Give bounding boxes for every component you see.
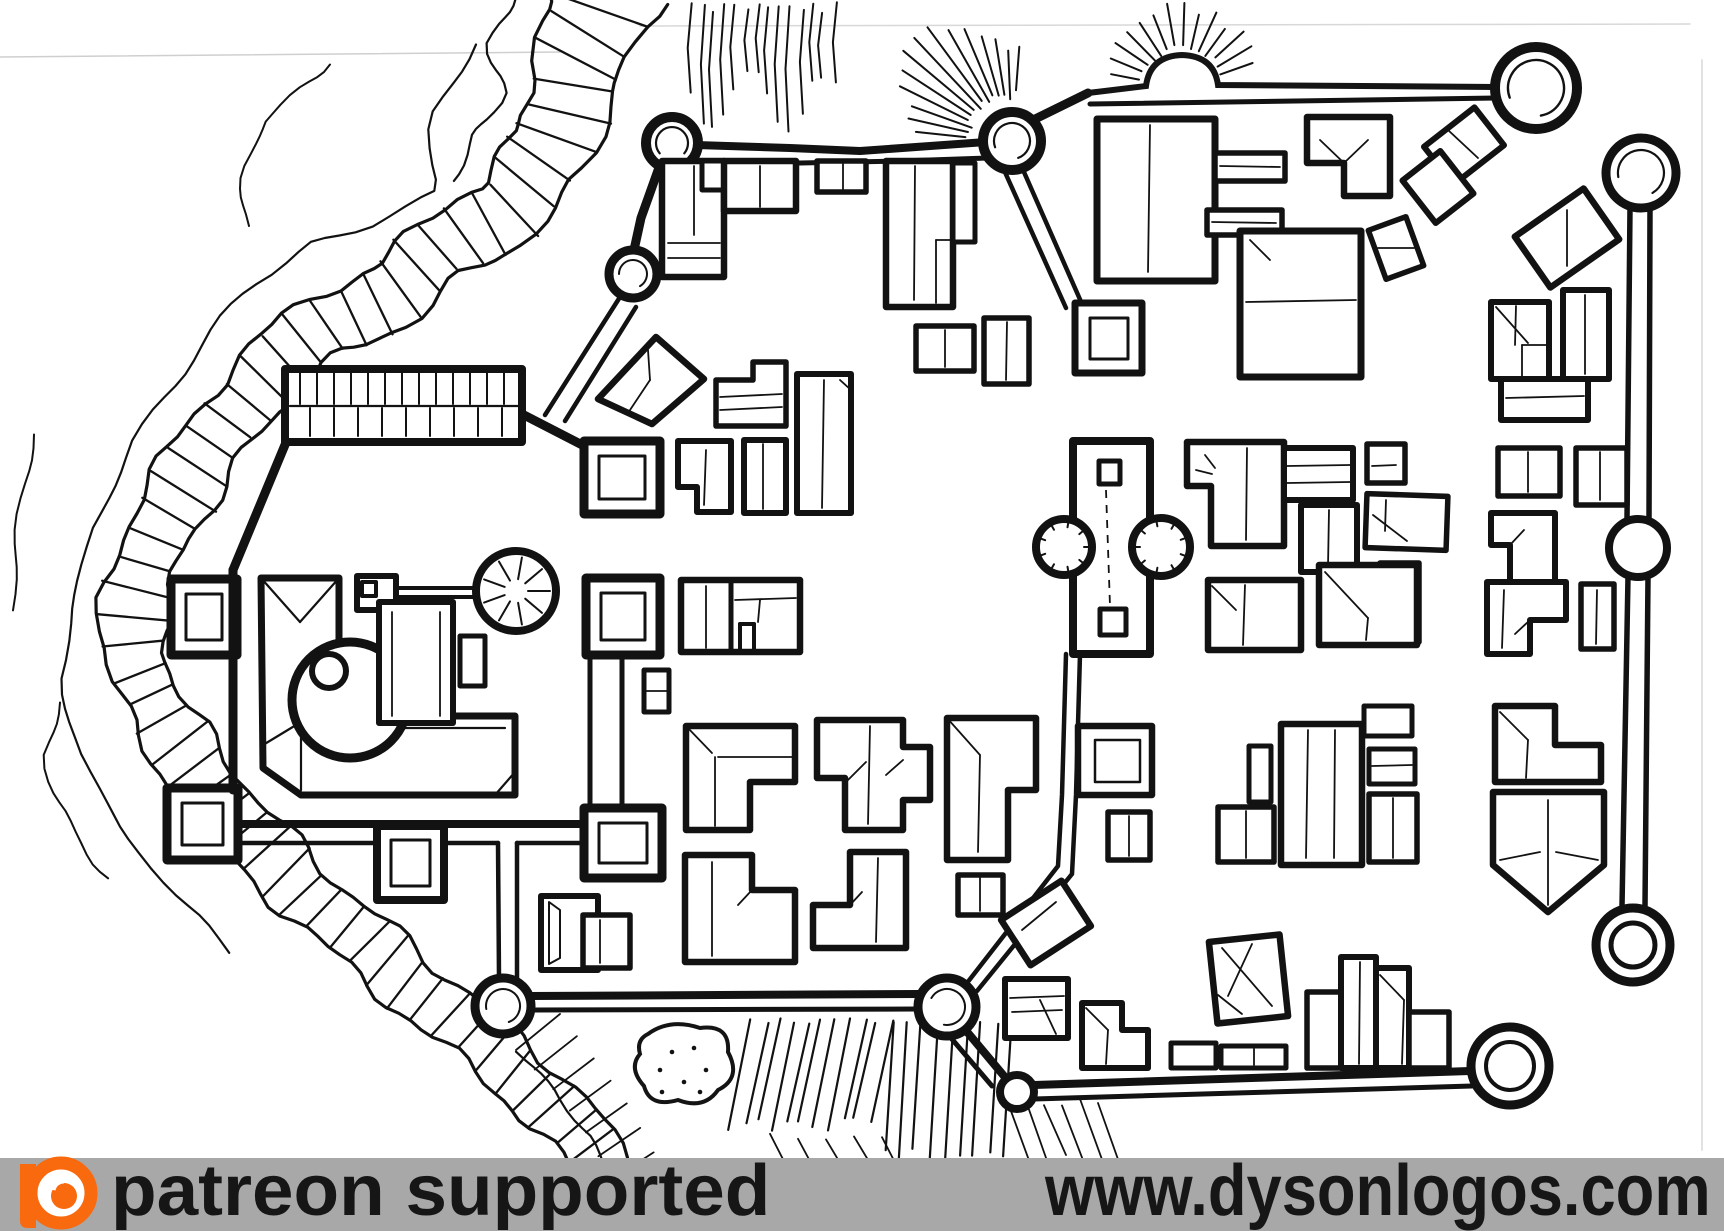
svg-text:patreon supported: patreon supported bbox=[111, 1150, 770, 1230]
svg-text:www.dysonlogos.com: www.dysonlogos.com bbox=[1044, 1151, 1711, 1231]
